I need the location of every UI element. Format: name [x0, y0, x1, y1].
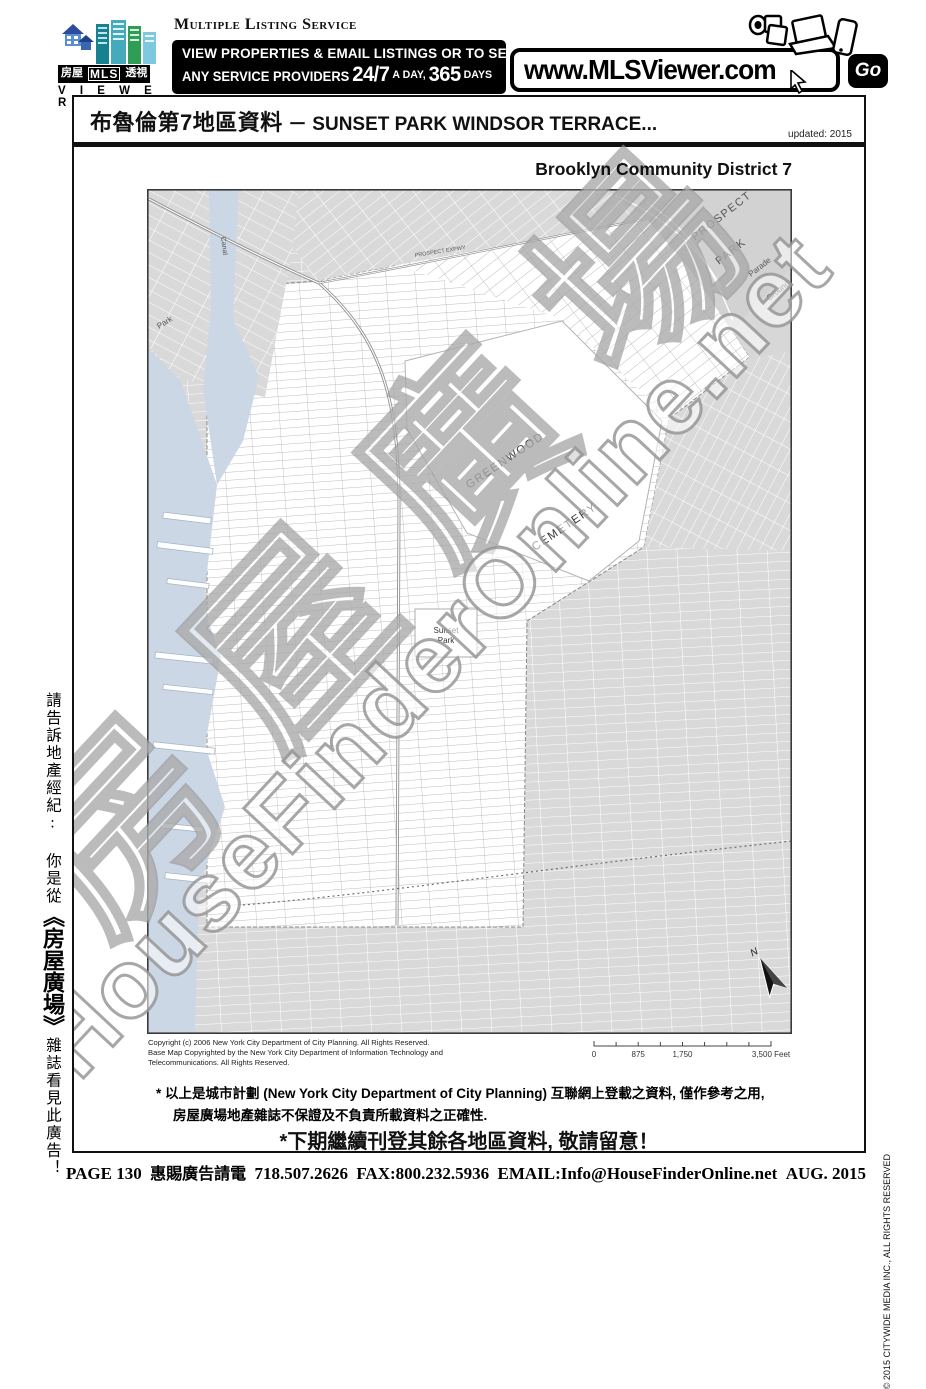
content-frame: 布魯倫第7地區資料 － SUNSET PARK WINDSOR TERRACE.…: [72, 95, 866, 1153]
page-title-cjk: 布魯倫第7地區資料: [90, 110, 283, 135]
map-scalebar: 0 875 1,750 3,500 Feet: [586, 1035, 796, 1066]
banner-line2: ANY SERVICE PROVIDERS 24/7 A DAY, 365 DA…: [182, 63, 485, 87]
scale-3500: 3,500 Feet: [752, 1050, 791, 1059]
banner-line2-pre: ANY SERVICE PROVIDERS: [182, 69, 349, 84]
devices-icon: [748, 12, 858, 70]
map-copyright-line1: Copyright (c) 2006 New York City Departm…: [148, 1038, 443, 1048]
sunset-label: Sunset: [434, 626, 460, 635]
page-footer: PAGE 130 惠賜廣告請電 718.507.2626 FAX:800.232…: [66, 1160, 866, 1184]
scale-875: 875: [632, 1050, 646, 1059]
title-bar: 布魯倫第7地區資料 － SUNSET PARK WINDSOR TERRACE.…: [74, 97, 864, 147]
footer-date: AUG. 2015: [786, 1164, 866, 1184]
page-title: 布魯倫第7地區資料 － SUNSET PARK WINDSOR TERRACE.…: [90, 105, 657, 137]
sidebar-left-slogan: 請告訴地產經紀: 你是從《房屋廣場》雜誌看見此廣告！: [30, 692, 68, 1184]
banner-line1: VIEW PROPERTIES & EMAIL LISTINGS OR TO S…: [182, 45, 485, 61]
scale-1750: 1,750: [672, 1050, 693, 1059]
map-copyright-line2: Base Map Copyrighted by the New York Cit…: [148, 1048, 443, 1058]
disclaimer: * 以上是城市計劃 (New York City Department of C…: [156, 1083, 765, 1128]
footer-fax: FAX:800.232.5936: [356, 1164, 489, 1184]
publisher-copyright: © 2015 CITYWIDE MEDIA INC., ALL RIGHTS R…: [882, 1154, 892, 1389]
cursor-icon: [788, 70, 810, 94]
next-issue-notice: *下期繼續刊登其餘各地區資料, 敬請留意！: [74, 1125, 864, 1153]
slogan-part1: 請告訴地產經紀: 你是從: [44, 692, 61, 905]
service-name: Multiple Listing Service: [174, 16, 357, 34]
page-title-en: － SUNSET PARK WINDSOR TERRACE...: [283, 114, 657, 135]
footer-phone: 718.507.2626: [254, 1164, 348, 1184]
logo-box-mls: MLS: [86, 65, 122, 83]
go-button[interactable]: Go: [848, 54, 888, 88]
logo-box-cjk2: 透視: [122, 65, 150, 83]
updated-date: updated: 2015: [788, 129, 852, 140]
district-map: PROSPECT PARK Parade Ground GREENWOOD CE…: [147, 189, 792, 1034]
banner-365: 365: [429, 63, 461, 87]
banner-247: 24/7: [352, 63, 389, 87]
map-svg: PROSPECT PARK Parade Ground GREENWOOD CE…: [147, 189, 792, 1034]
banner-days: DAYS: [464, 69, 492, 81]
scale-0: 0: [592, 1050, 597, 1059]
footer-page-number: PAGE 130: [66, 1164, 142, 1184]
footer-cjk: 惠賜廣告請電: [150, 1160, 246, 1184]
slogan-brand: 《房屋廣場》: [40, 905, 65, 1037]
page-header: 房屋 MLS 透視 V I E W E R Multiple Listing S…: [58, 14, 886, 96]
buildings-logo-icon: [58, 18, 162, 64]
map-title: Brooklyn Community District 7: [74, 159, 792, 180]
slogan-part2: 雜誌看見此廣告！: [44, 1037, 61, 1177]
banner-a-day: A DAY,: [392, 69, 425, 81]
logo-box-cjk1: 房屋: [58, 65, 86, 83]
website-url[interactable]: www.MLSViewer.com: [524, 54, 776, 86]
map-copyright-line3: Telecommunications. All Rights Reserved.: [148, 1058, 443, 1068]
go-button-label: Go: [855, 60, 881, 82]
header-banner: VIEW PROPERTIES & EMAIL LISTINGS OR TO S…: [172, 40, 506, 94]
disclaimer-line1: * 以上是城市計劃 (New York City Department of C…: [156, 1083, 765, 1105]
map-copyright: Copyright (c) 2006 New York City Departm…: [148, 1038, 443, 1068]
sunset-label-2: Park: [438, 636, 455, 645]
footer-email: EMAIL:Info@HouseFinderOnline.net: [498, 1164, 778, 1184]
